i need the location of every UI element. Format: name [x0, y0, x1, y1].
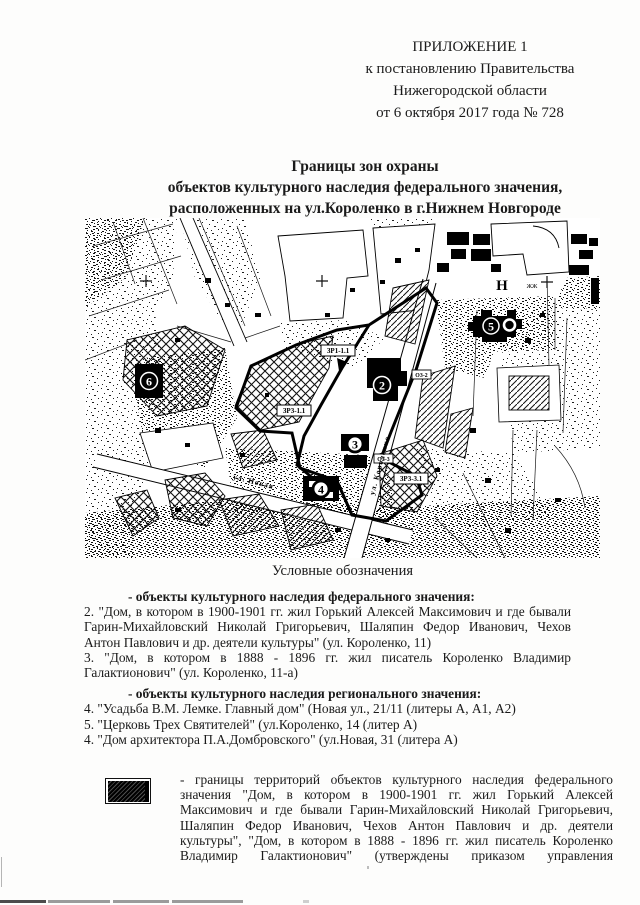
page: { "palette": {"ink": "#1a1a1a", "paper":…	[0, 0, 640, 905]
legend-block: - объекты культурного наследия федеральн…	[84, 589, 571, 747]
boundary-note: - границы территорий объектов культурног…	[180, 772, 613, 863]
legend-item-regional-3: 4. "Дом архитектора П.А.Домбровского" (у…	[84, 732, 571, 747]
block-note: ЖЖ	[527, 284, 538, 290]
legend-item-federal-2: 3. "Дом, в котором в 1888 - 1896 гг. жил…	[84, 650, 571, 680]
title-line-1: Границы зон охраны	[105, 156, 625, 177]
map-image: 2 3 4 5 6 ЗР1-1.1 ЗР3-1.1 ЗР3-3.1 ОЗ-2 О…	[85, 218, 600, 558]
legend-item-federal-1: 2. "Дом, в котором в 1900-1901 гг. жил Г…	[84, 604, 571, 650]
svg-text:ЗР3-1.1: ЗР3-1.1	[283, 407, 306, 415]
legend-item-regional-2: 5. "Церковь Трех Святителей" (ул.Королен…	[84, 717, 571, 732]
scan-strip-3	[113, 900, 169, 903]
boundary-swatch	[105, 778, 151, 804]
map-marker-3: 3	[347, 436, 363, 452]
legend-caption: Условные обозначения	[85, 563, 600, 580]
svg-text:4: 4	[318, 483, 324, 497]
svg-text:ЗР3-3.1: ЗР3-3.1	[400, 475, 423, 483]
scan-strip-2	[48, 900, 110, 903]
svg-text:5: 5	[488, 320, 494, 334]
legend-heading-regional: - объекты культурного наследия региональ…	[84, 686, 571, 701]
map-zone-label-zr3-31: ЗР3-3.1	[394, 473, 428, 484]
scan-strip-5	[303, 900, 309, 903]
title-line-3: расположенных на ул.Короленко в г.Нижнем…	[105, 198, 625, 219]
map-zone-label-oz2: ОЗ-2	[412, 370, 431, 379]
map-zone-label-zr3-11: ЗР3-1.1	[277, 405, 311, 416]
svg-text:3: 3	[352, 438, 358, 452]
map-figure: 2 3 4 5 6 ЗР1-1.1 ЗР3-1.1 ЗР3-3.1 ОЗ-2 О…	[85, 218, 600, 558]
header-line-resolution: к постановлению Правительства	[337, 58, 603, 80]
map-zone-label-zr1-11: ЗР1-1.1	[321, 345, 355, 356]
header-line-region: Нижегородской области	[337, 80, 603, 102]
map-marker-2: 2	[374, 377, 391, 394]
scan-strip-1	[0, 900, 46, 903]
page-title: Границы зон охраны объектов культурного …	[105, 156, 625, 219]
scan-strip-4	[172, 900, 243, 903]
block-letter-n: Н	[496, 278, 508, 294]
scan-dot-artifact	[367, 866, 369, 869]
legend-item-regional-1: 4. "Усадьба В.М. Лемке. Главный дом" (Но…	[84, 701, 571, 716]
svg-text:ЗР1-1.1: ЗР1-1.1	[327, 347, 350, 355]
svg-text:6: 6	[146, 375, 152, 389]
svg-text:ОЗ-2: ОЗ-2	[415, 373, 427, 379]
map-marker-6: 6	[141, 373, 158, 390]
svg-text:2: 2	[379, 379, 385, 393]
map-marker-4: 4	[313, 481, 329, 497]
header-line-date: от 6 октября 2017 года № 728	[337, 102, 603, 124]
title-line-2: объектов культурного наследия федерально…	[105, 177, 625, 198]
header-line-appendix: ПРИЛОЖЕНИЕ 1	[337, 36, 603, 58]
decree-header: ПРИЛОЖЕНИЕ 1 к постановлению Правительст…	[337, 36, 603, 124]
legend-heading-federal: - объекты культурного наследия федеральн…	[84, 589, 571, 604]
boundary-swatch-hatch	[108, 781, 149, 802]
scan-edge-artifact	[1, 857, 2, 887]
